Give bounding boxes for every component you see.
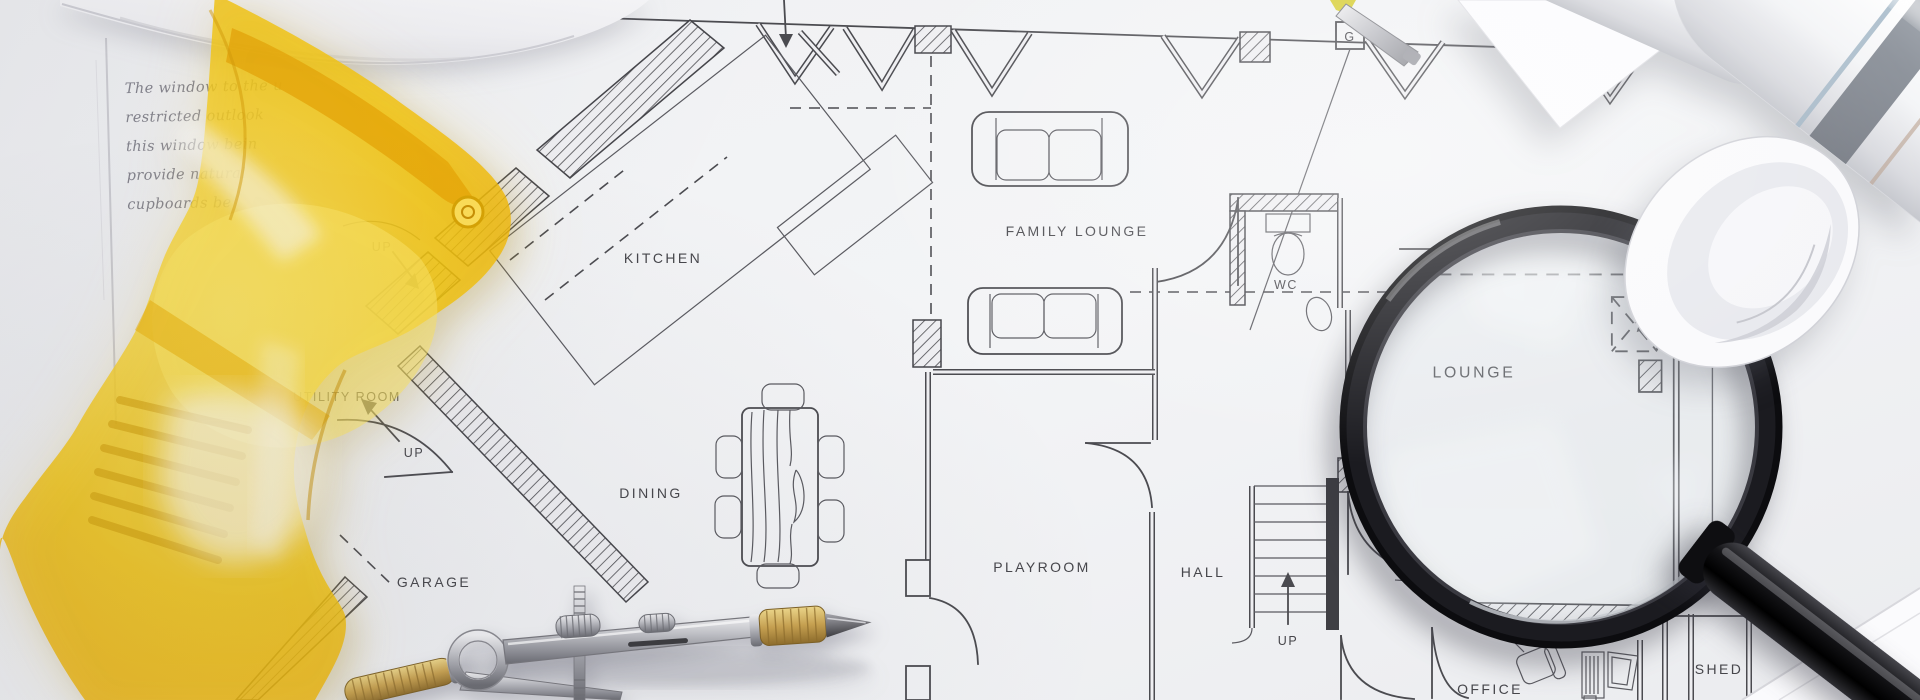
photo-scene: G KITCHEN UP FAMILY LOUNGE [0, 0, 1920, 700]
rolled-blueprints-icon [0, 0, 1920, 700]
